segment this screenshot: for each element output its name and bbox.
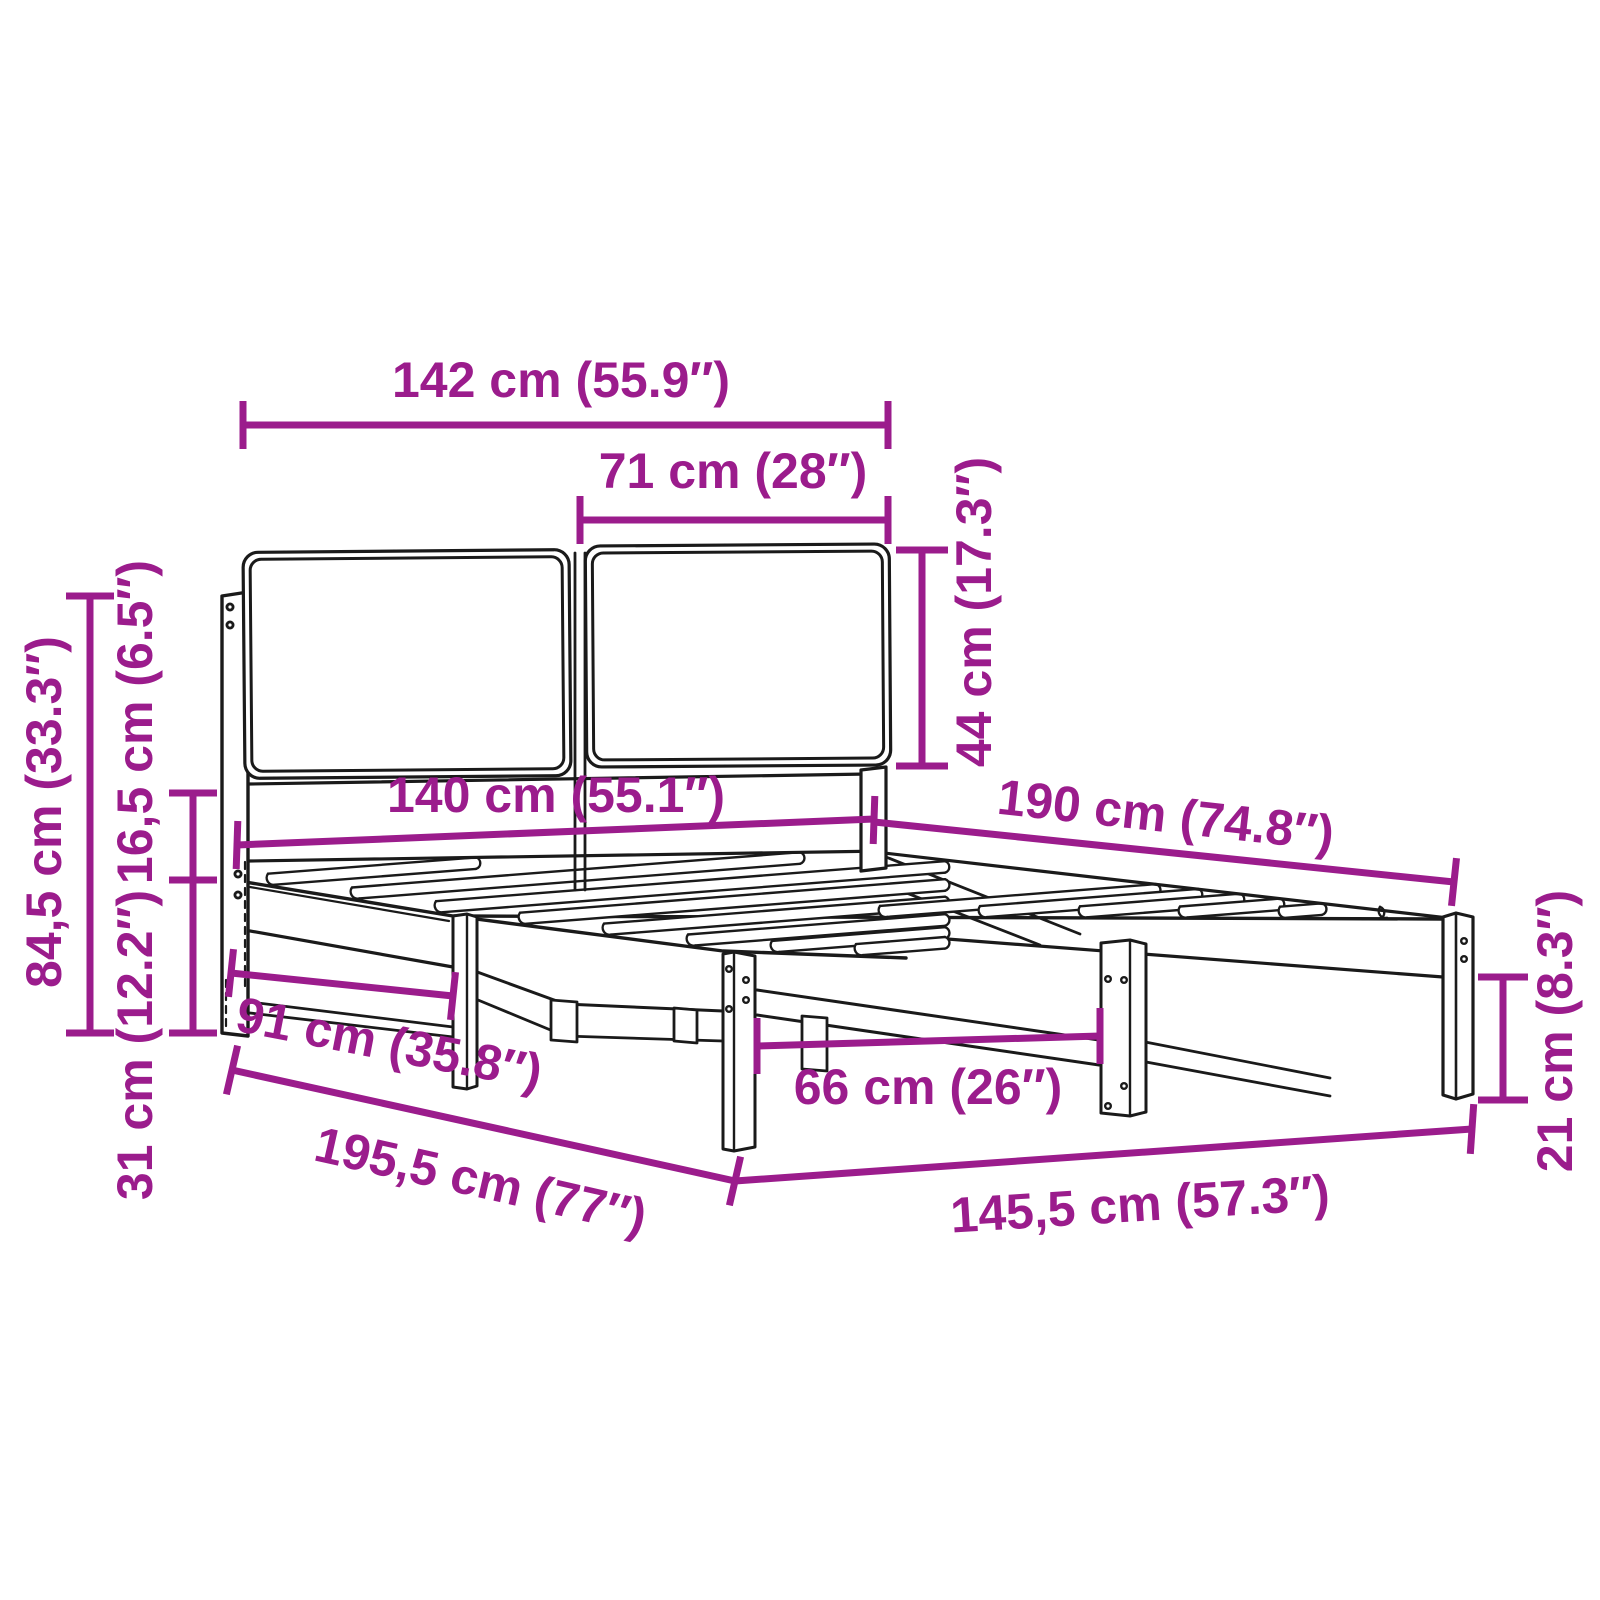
svg-text:21 cm (8.3″): 21 cm (8.3″) xyxy=(1527,890,1583,1172)
svg-text:84,5 cm (33.3″): 84,5 cm (33.3″) xyxy=(16,636,72,988)
svg-text:16,5 cm (6.5″): 16,5 cm (6.5″) xyxy=(107,560,163,884)
svg-text:66 cm (26″): 66 cm (26″) xyxy=(794,1059,1063,1115)
svg-text:142 cm (55.9″): 142 cm (55.9″) xyxy=(392,352,730,408)
svg-text:31 cm (12.2″): 31 cm (12.2″) xyxy=(107,890,163,1200)
svg-text:140 cm (55.1″): 140 cm (55.1″) xyxy=(387,767,725,823)
svg-text:71 cm (28″): 71 cm (28″) xyxy=(599,443,868,499)
svg-text:44 cm (17.3″): 44 cm (17.3″) xyxy=(946,457,1002,767)
